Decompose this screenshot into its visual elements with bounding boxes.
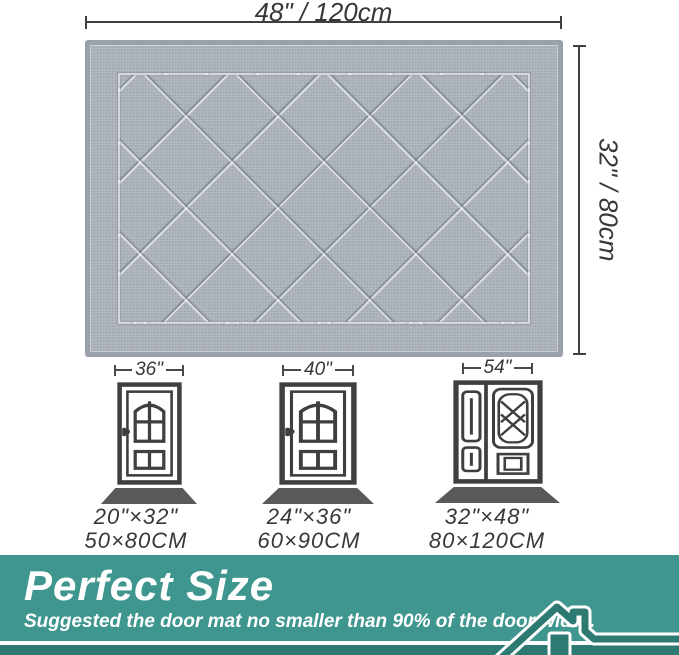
perfect-size-banner: Perfect Size Suggested the door mat no s… bbox=[0, 555, 679, 655]
banner-title: Perfect Size bbox=[24, 562, 274, 610]
mat-size-option-3: 32"×48" 80×120CM bbox=[402, 505, 572, 553]
door-mat-icon bbox=[101, 488, 197, 504]
single-door-icon bbox=[279, 382, 357, 485]
door-width-label: 40" bbox=[301, 361, 335, 379]
mat-size-option-2: 24"×36" 60×90CM bbox=[224, 505, 394, 553]
double-door-icon bbox=[453, 380, 543, 484]
door-width-dimension: 40" bbox=[278, 360, 358, 380]
mat-size-option-1: 20"×32" 50×80CM bbox=[51, 505, 221, 553]
mat-diamond-pattern bbox=[118, 73, 530, 324]
door-option-36: 36" bbox=[101, 360, 197, 504]
door-width-label: 54" bbox=[481, 359, 515, 377]
door-option-54: 54" bbox=[435, 358, 560, 503]
door-mat-icon bbox=[435, 487, 560, 503]
door-width-label: 36" bbox=[132, 361, 166, 379]
door-width-dimension: 54" bbox=[451, 358, 545, 378]
size-inches: 32"×48" bbox=[402, 505, 572, 529]
size-inches: 20"×32" bbox=[51, 505, 221, 529]
door-mat-icon bbox=[262, 488, 374, 504]
size-cm: 60×90CM bbox=[224, 529, 394, 553]
door-mat-image bbox=[85, 40, 563, 357]
size-cm: 50×80CM bbox=[51, 529, 221, 553]
mat-height-dimension-label: 32" / 80cm bbox=[586, 45, 630, 355]
single-door-icon bbox=[117, 382, 182, 485]
door-option-40: 40" bbox=[263, 360, 373, 504]
size-inches: 24"×36" bbox=[224, 505, 394, 529]
mat-height-dimension-line bbox=[578, 45, 580, 355]
size-cm: 80×120CM bbox=[402, 529, 572, 553]
house-icon bbox=[479, 593, 679, 655]
door-mat-size-infographic: 48" / 120cm 32" / 80cm 36" bbox=[0, 0, 679, 655]
mat-width-dimension-line bbox=[85, 21, 562, 23]
door-width-dimension: 36" bbox=[114, 360, 184, 380]
